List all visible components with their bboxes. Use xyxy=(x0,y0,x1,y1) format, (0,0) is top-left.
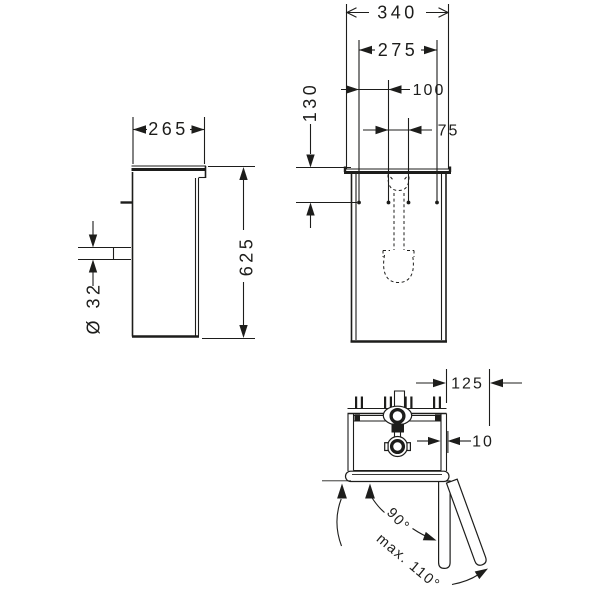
dim-265-label: 265 xyxy=(148,119,189,139)
angle-90-label: 90° xyxy=(383,505,413,535)
arc-110 xyxy=(337,499,342,546)
arrow-left-icon xyxy=(448,437,461,445)
dimension-side-clearance-125: 125 xyxy=(416,376,522,393)
arc-arrowhead-icon xyxy=(423,532,437,541)
technical-drawing-page: 340 275 100 75 130 xyxy=(0,0,600,600)
dim-275-label: 275 xyxy=(378,40,419,60)
arrow-left-icon xyxy=(490,379,503,387)
drain-nub xyxy=(407,443,410,451)
dim-340-label: 340 xyxy=(377,3,418,23)
arrow-up-icon xyxy=(365,484,375,499)
dim-625-label: 625 xyxy=(237,236,257,277)
front-view: 340 275 100 75 130 xyxy=(296,3,459,342)
arrow-right-icon xyxy=(433,379,446,387)
dimension-outlet-diameter: Ø 32 xyxy=(84,221,104,335)
vanity-dimension-drawing: 340 275 100 75 130 xyxy=(0,0,600,600)
dimension-mounting-width: 275 xyxy=(359,40,437,60)
arrow-up-icon xyxy=(89,260,97,273)
cabinet-front-outline xyxy=(344,167,451,342)
mounting-hole-markers xyxy=(357,201,439,205)
dimension-door-thickness-10: 10 xyxy=(417,431,494,453)
arrow-left-icon xyxy=(389,85,402,93)
arrow-left-icon xyxy=(359,46,372,54)
drain-nub xyxy=(385,443,388,451)
dimension-height-625: 625 xyxy=(202,167,257,339)
dim-10-label: 10 xyxy=(472,434,494,451)
arrow-down-icon xyxy=(89,235,97,248)
arrow-left-icon xyxy=(409,126,422,134)
dimension-overall-width: 340 xyxy=(347,3,449,23)
tap-clamp-block xyxy=(392,424,405,433)
drain-pipe xyxy=(78,248,131,260)
door-open-90 xyxy=(439,481,451,568)
corner-brace xyxy=(435,415,441,422)
drain-ring xyxy=(392,441,404,453)
dim-75-label: 75 xyxy=(438,123,460,140)
corner-brace xyxy=(355,415,361,422)
arrow-up-icon xyxy=(337,484,347,499)
dim-125-label: 125 xyxy=(451,376,484,393)
arrow-right-icon xyxy=(192,125,205,133)
top-view: 125 xyxy=(322,369,522,593)
arrow-right-icon xyxy=(424,46,437,54)
door-swing xyxy=(439,479,488,568)
arrow-right-icon xyxy=(428,437,441,445)
dim-130-label: 130 xyxy=(300,82,320,123)
tap-ring xyxy=(391,410,404,423)
dimension-mounting-depth-130: 130 xyxy=(296,82,357,228)
dim-diameter-label: Ø 32 xyxy=(84,281,104,334)
side-view: 265 Ø 32 xyxy=(78,117,257,339)
cabinet-side-outline xyxy=(121,166,207,337)
arrow-right-icon xyxy=(376,126,389,134)
siphon-hidden-outline xyxy=(383,175,414,283)
arc-arrowhead-icon xyxy=(475,569,488,580)
arrow-right-icon xyxy=(346,85,359,93)
arrow-up-icon xyxy=(239,167,247,180)
tap-and-drain-fittings xyxy=(383,406,411,456)
dimension-hole-spacing-75: 75 xyxy=(363,123,459,140)
arc-110 xyxy=(452,575,479,585)
arrow-left-icon xyxy=(133,125,146,133)
dim-100-label: 100 xyxy=(413,82,446,99)
arrow-down-icon xyxy=(306,155,314,168)
door-open-110 xyxy=(446,479,487,567)
arrow-up-icon xyxy=(306,203,314,216)
arc-90 xyxy=(372,497,385,513)
arrow-down-icon xyxy=(239,325,247,338)
console-front-edge xyxy=(346,471,450,481)
dimension-depth-265: 265 xyxy=(133,119,205,139)
dimension-hole-spacing-100: 100 xyxy=(341,82,445,99)
